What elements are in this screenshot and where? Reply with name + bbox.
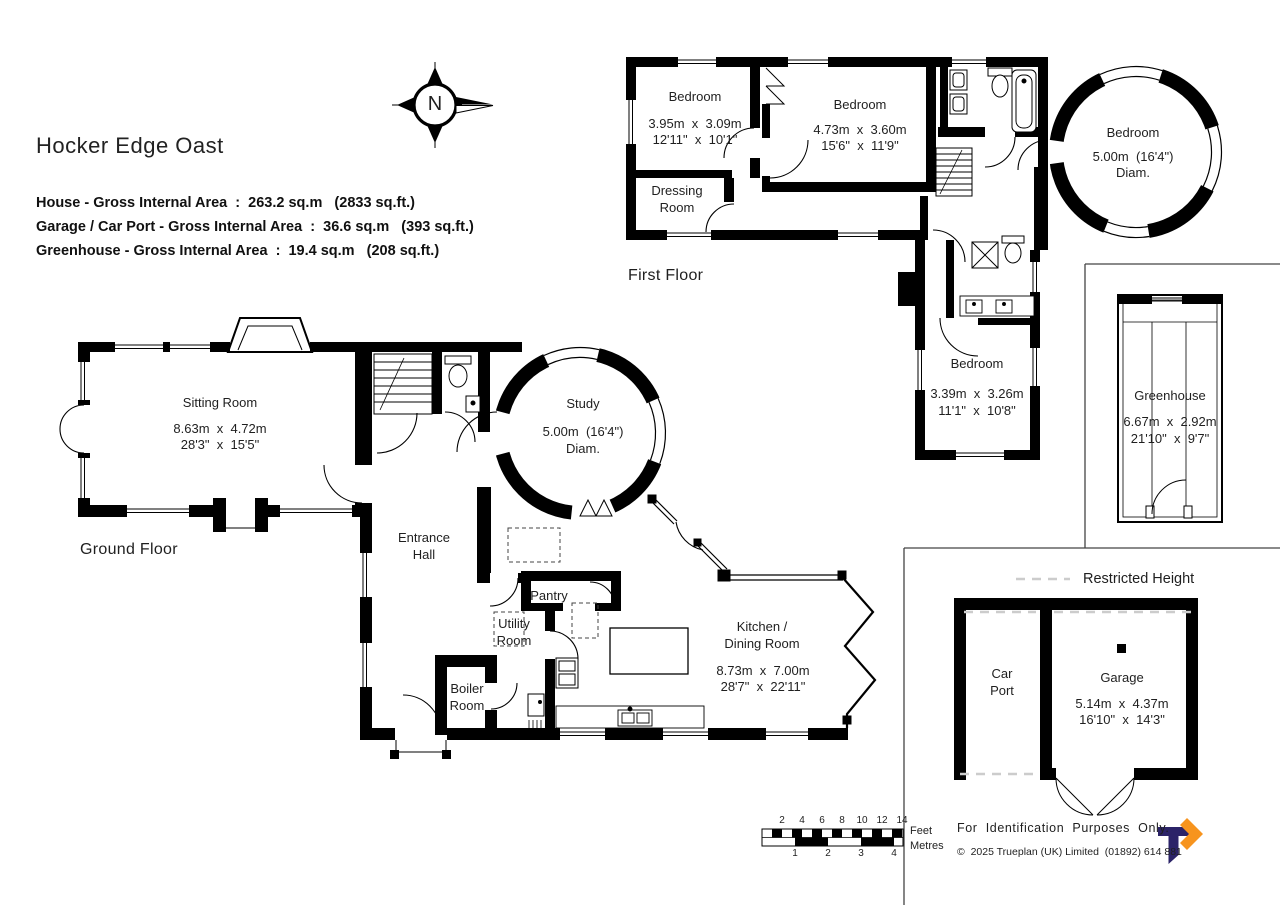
room-kitchen-imperial: 28'7" x 22'11": [721, 678, 806, 695]
scale-feet-tick: 8: [839, 815, 845, 826]
scale-metre-tick: 4: [891, 848, 897, 859]
room-bedroom-rear: Bedroom: [951, 355, 1004, 372]
bathtub-icon: [1012, 70, 1036, 132]
ground-floor-label: Ground Floor: [80, 541, 178, 558]
wc-fixtures: [445, 356, 480, 412]
room-bedroom-rear-metric: 3.39m x 3.26m: [930, 385, 1023, 402]
scale-feet-tick: 6: [819, 815, 825, 826]
room-bedroom-left-imperial: 12'11" x 10'1": [653, 131, 738, 148]
scale-feet-tick: 4: [799, 815, 805, 826]
room-bedroom-middle-metric: 4.73m x 3.60m: [813, 121, 906, 138]
room-greenhouse-imperial: 21'10" x 9'7": [1131, 430, 1210, 447]
room-study: Study: [566, 395, 599, 412]
room-bedroom-tower-diam: Diam.: [1116, 164, 1150, 181]
toilet-icon: [988, 68, 1012, 97]
wardrobe-bifold: [766, 68, 784, 104]
room-car-port: Car Port: [985, 665, 1019, 699]
north-arrow-east-black: [456, 97, 493, 105]
garage-post: [1117, 644, 1126, 653]
room-garage: Garage: [1100, 669, 1143, 686]
area-house: House - Gross Internal Area : 263.2 sq.m…: [36, 195, 415, 211]
room-kitchen-metric: 8.73m x 7.00m: [716, 662, 809, 679]
restricted-height-label: Restricted Height: [1083, 571, 1194, 588]
room-pantry: Pantry: [530, 587, 568, 604]
scale-feet-tick: 10: [856, 815, 867, 826]
compass-north-label: N: [428, 93, 442, 116]
room-boiler: Boiler Room: [443, 680, 491, 714]
scale-bar: [762, 829, 903, 846]
room-bedroom-rear-imperial: 11'1" x 10'8": [938, 402, 1016, 419]
toilet-icon-2: [1002, 236, 1024, 263]
room-garage-imperial: 16'10" x 14'3": [1079, 711, 1165, 728]
scale-feet-tick: 12: [876, 815, 887, 826]
room-bedroom-tower: Bedroom: [1107, 124, 1160, 141]
scale-feet-label: Feet: [910, 825, 932, 837]
room-bedroom-middle-imperial: 15'6" x 11'9": [821, 137, 899, 154]
room-entrance-hall: Entrance Hall: [388, 529, 460, 563]
compass-rose: [392, 62, 493, 148]
scale-metres-label: Metres: [910, 840, 944, 852]
garage-door-arcs: [1056, 778, 1134, 815]
porch: [390, 740, 451, 759]
stove-icon: [556, 658, 578, 688]
room-sitting-imperial: 28'3" x 15'5": [181, 436, 260, 453]
sink-icon: [950, 70, 967, 114]
room-utility: Utility Room: [490, 615, 538, 649]
copyright-note: © 2025 Trueplan (UK) Limited (01892) 614…: [957, 846, 1182, 858]
ground-floor-stairs: [374, 354, 432, 414]
scale-feet-tick: 14: [896, 815, 907, 826]
room-garage-metric: 5.14m x 4.37m: [1075, 695, 1168, 712]
scale-feet-tick: 2: [779, 815, 785, 826]
scale-metre-tick: 3: [858, 848, 864, 859]
room-bedroom-middle: Bedroom: [834, 96, 887, 113]
greenhouse-plan: [1118, 295, 1222, 522]
boiler-appliance: [528, 694, 544, 728]
room-greenhouse: Greenhouse: [1134, 387, 1206, 404]
room-greenhouse-metric: 6.67m x 2.92m: [1123, 413, 1216, 430]
scale-metre-tick: 2: [825, 848, 831, 859]
kitchen-island: [610, 628, 688, 674]
area-garage: Garage / Car Port - Gross Internal Area …: [36, 219, 474, 235]
room-bedroom-left: Bedroom: [669, 88, 722, 105]
scale-metre-tick: 1: [792, 848, 798, 859]
room-dressing: Dressing Room: [645, 182, 709, 216]
room-bedroom-tower-metric: 5.00m (16'4"): [1093, 148, 1174, 165]
area-greenhouse: Greenhouse - Gross Internal Area : 19.4 …: [36, 243, 439, 259]
page-title: Hocker Edge Oast: [36, 133, 224, 159]
room-bedroom-left-metric: 3.95m x 3.09m: [648, 115, 741, 132]
bay-window: [228, 318, 312, 352]
first-floor-label: First Floor: [628, 267, 703, 284]
twin-sinks: [960, 296, 1034, 316]
shower-icon: [972, 242, 998, 268]
room-sitting: Sitting Room: [183, 394, 257, 411]
first-floor-stairs: [936, 148, 972, 196]
room-kitchen: Kitchen / Dining Room: [718, 618, 806, 652]
floorplan-canvas: Hocker Edge Oast House - Gross Internal …: [0, 0, 1280, 905]
room-sitting-metric: 8.63m x 4.72m: [173, 420, 266, 437]
room-study-metric: 5.00m (16'4"): [543, 423, 624, 440]
identification-note: For Identification Purposes Only.: [957, 821, 1169, 835]
room-study-diam: Diam.: [566, 440, 600, 457]
kitchen-counter: [556, 706, 704, 728]
